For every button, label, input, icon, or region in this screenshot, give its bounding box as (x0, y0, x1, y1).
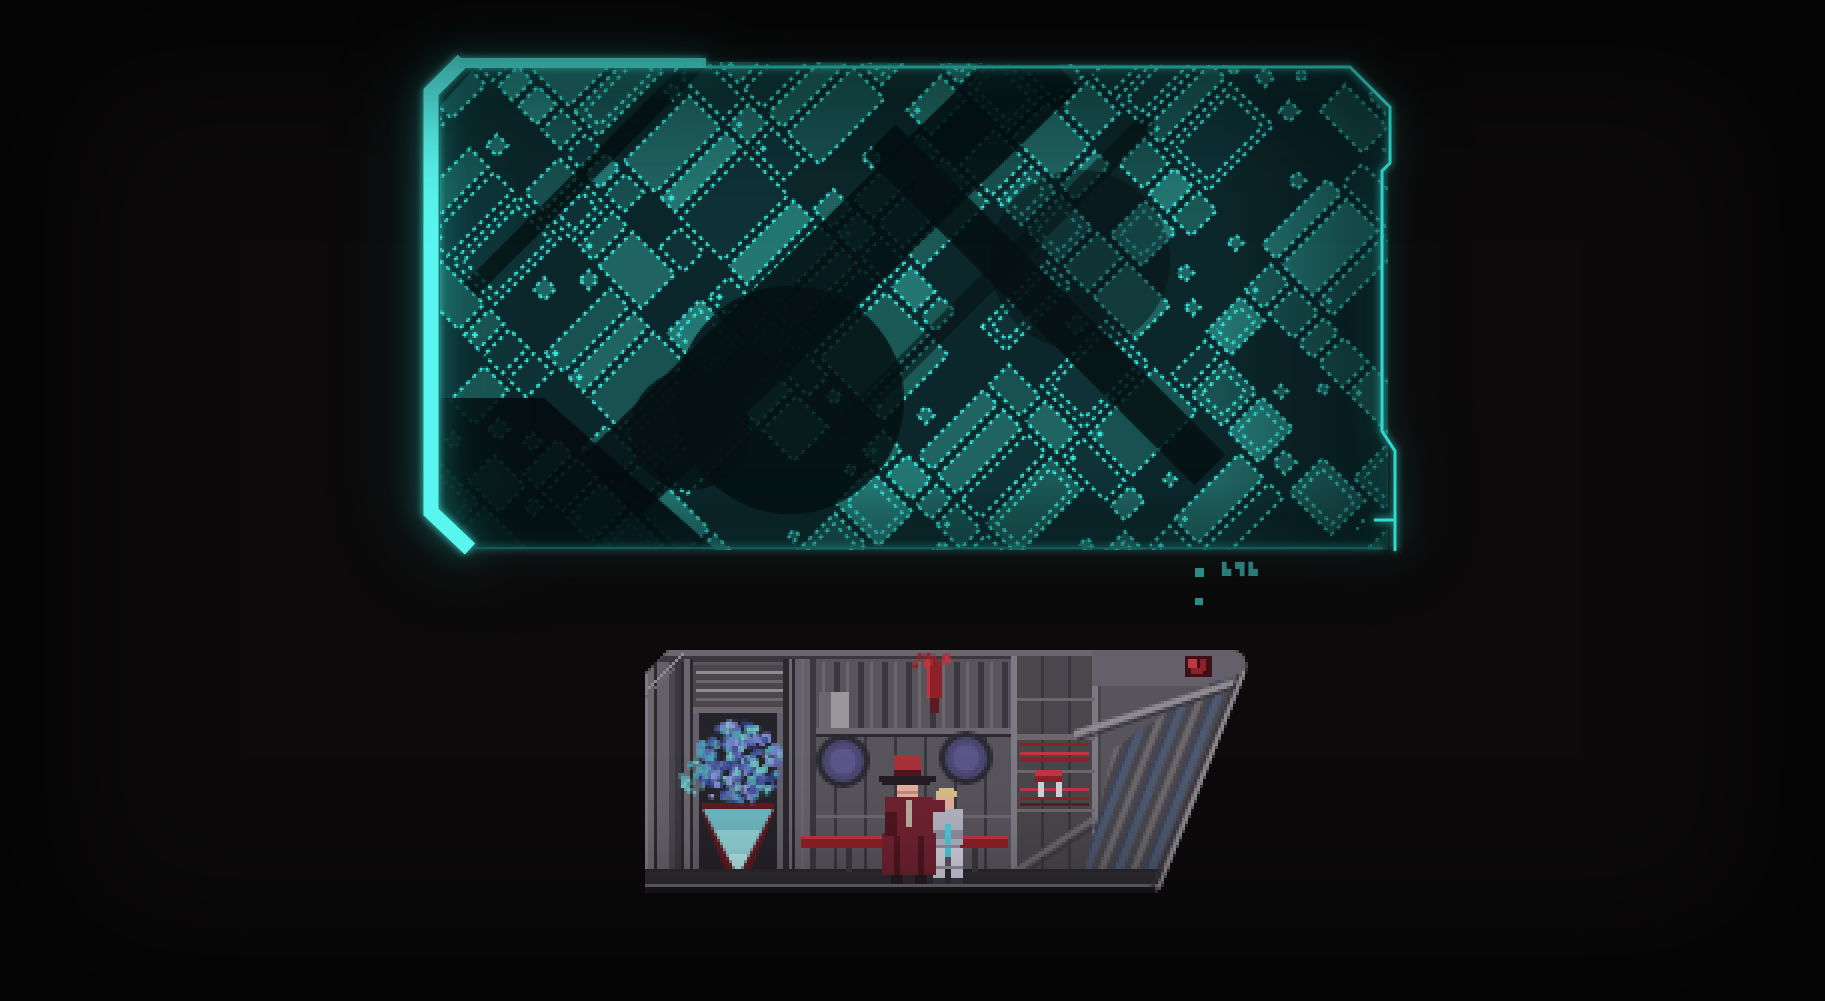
holo-map-display[interactable] (440, 58, 1388, 550)
ship-interior-scene[interactable] (642, 647, 1254, 896)
map-marker-dot-2 (1195, 598, 1203, 605)
map-marker-dot-1 (1195, 568, 1204, 577)
game-viewport[interactable]: ▙▜▙ (0, 0, 1825, 1001)
map-marker-glyphs: ▙▜▙ (1222, 563, 1262, 575)
